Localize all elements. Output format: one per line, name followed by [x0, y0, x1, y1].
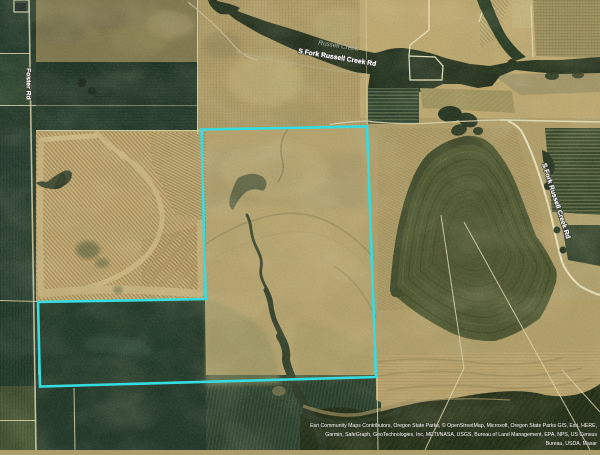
svg-text:Bureau, USDA, Maxar: Bureau, USDA, Maxar	[546, 441, 598, 447]
svg-text:Garmin, SafeGraph, GeoTechnolo: Garmin, SafeGraph, GeoTechnologies, Inc,…	[325, 432, 597, 438]
svg-text:Foster Rd: Foster Rd	[25, 68, 32, 100]
svg-text:Esri Community Maps Contributo: Esri Community Maps Contributors, Oregon…	[310, 422, 597, 429]
